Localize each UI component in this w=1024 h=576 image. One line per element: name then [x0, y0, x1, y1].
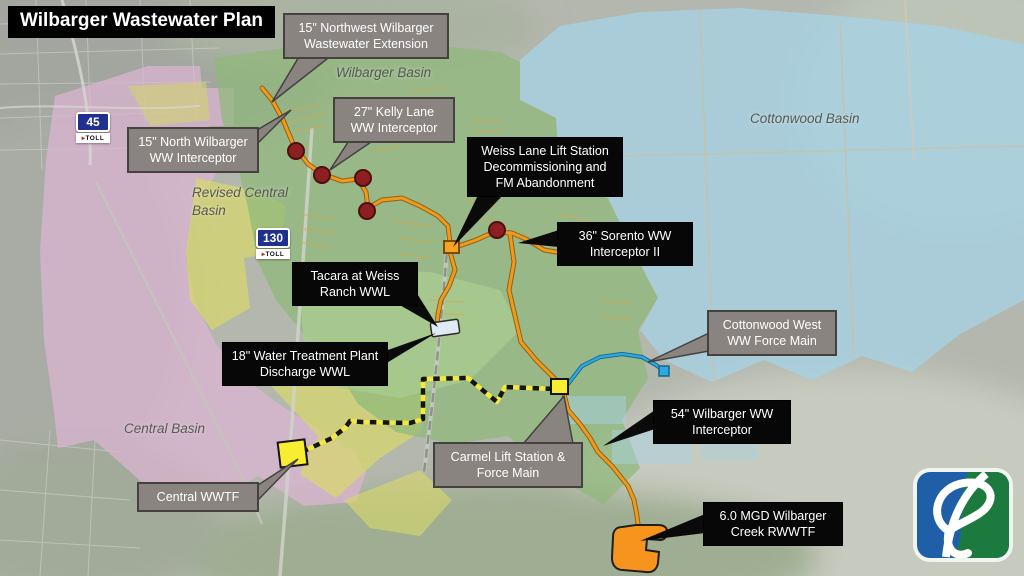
callout-kelly-lane: 27" Kelly Lane WW Interceptor: [333, 97, 455, 143]
callout-wilbarger-54: 54" Wilbarger WW Interceptor: [653, 400, 791, 444]
callout-nw-extension: 15" Northwest Wilbarger Wastewater Exten…: [283, 13, 449, 59]
page-title: Wilbarger Wastewater Plan: [8, 6, 275, 38]
callout-tacara: Tacara at Weiss Ranch WWL: [292, 262, 418, 306]
highway-shield-130: 130 ▸TOLL: [256, 228, 290, 259]
basin-label-revised-central: Revised Central Basin: [192, 184, 312, 219]
callout-rwwtf: 6.0 MGD Wilbarger Creek RWWTF: [703, 502, 843, 546]
callout-wtp-discharge: 18" Water Treatment Plant Discharge WWL: [222, 342, 388, 386]
callout-weiss-lane: Weiss Lane Lift Station Decommissioning …: [467, 137, 623, 197]
highway-shield-45: 45 ▸TOLL: [76, 112, 110, 143]
callout-sorento: 36" Sorento WW Interceptor II: [557, 222, 693, 266]
map-canvas: Wilbarger Wastewater Plan Wilbarger Basi…: [0, 0, 1024, 576]
cottonwood-fm-endpoint-marker: [659, 366, 669, 376]
shield-130-toll-banner: ▸TOLL: [256, 249, 290, 259]
callout-carmel: Carmel Lift Station & Force Main: [433, 442, 583, 488]
callout-north-wilbarger: 15" North Wilbarger WW Interceptor: [127, 127, 259, 173]
basin-label-central: Central Basin: [124, 420, 205, 438]
callout-cottonwood-west: Cottonwood West WW Force Main: [707, 310, 837, 356]
shield-130-number: 130: [256, 228, 290, 248]
basin-label-cottonwood: Cottonwood Basin: [750, 110, 860, 128]
shield-45-number: 45: [76, 112, 110, 132]
basin-label-wilbarger: Wilbarger Basin: [336, 64, 431, 82]
carmel-lift-station-marker: [551, 379, 568, 394]
shield-45-toll-banner: ▸TOLL: [76, 133, 110, 143]
callout-central-wwtf: Central WWTF: [137, 482, 259, 512]
pflugerville-logo: [912, 467, 1014, 568]
